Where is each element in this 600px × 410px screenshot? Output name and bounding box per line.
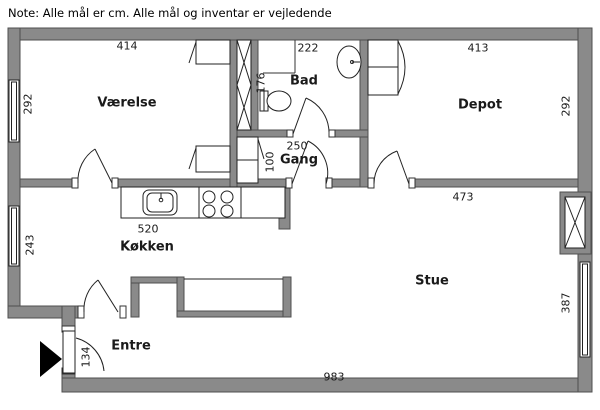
floor-plan: Note: Alle mål er cm. Alle mål og invent… [0,0,600,410]
bad-dim-lines [263,40,295,73]
dim-bad-width: 222 [298,42,319,55]
room-label-koekken: Køkken [120,240,174,255]
window-vaerelse [9,80,19,142]
dim-entre-door: 134 [80,347,93,368]
wall-mid-b [112,179,292,187]
closet-vaerelse-bottom [189,146,230,172]
door-depot [374,151,409,184]
wall-entre-post [283,277,291,317]
dim-bad-height: 176 [255,73,268,94]
room-label-gang: Gang [280,153,318,168]
room-label-bad: Bad [290,74,318,89]
dim-stue-width: 473 [453,191,474,204]
wall-mid-d [409,179,578,187]
windows [9,80,590,357]
wall-mid-a [20,179,78,187]
room-label-vaerelse: Værelse [97,96,156,111]
dim-depot-height: 292 [560,96,573,117]
shaft-vaerelse-bad [237,40,251,130]
note-text: Note: Alle mål er cm. Alle mål og invent… [8,6,332,20]
door-bad [293,98,329,134]
toilet [260,91,291,111]
dim-vaerelse-height: 292 [22,94,35,115]
door-vaerelse [78,149,112,183]
wall-outer-top [8,28,592,40]
closet-vaerelse-top [189,40,230,64]
shaft-stue [565,197,585,248]
wardrobe-depot [368,40,405,95]
dim-depot-width: 413 [468,42,489,55]
dim-total-width: 983 [324,371,345,384]
window-stue [580,262,590,357]
dim-stue-height: 387 [560,293,573,314]
bathroom-sink [337,46,361,78]
room-label-stue: Stue [415,274,449,289]
wall-vaerelse-right [230,40,237,187]
dim-vaerelse-width: 414 [117,40,138,53]
kitchen-sink [143,190,177,215]
dim-gang-width: 250 [287,140,308,153]
dim-koekken-height: 243 [24,235,37,256]
window-koekken [9,206,19,266]
wall-entre-zig-top [131,277,184,283]
dim-koekken-counter: 520 [138,223,159,236]
room-label-entre: Entre [111,339,151,354]
wall-bad-bottom-left [237,130,293,137]
entrance-arrow-icon [40,341,62,377]
wall-entre-zig-bottom [177,311,291,317]
closet-gang [237,137,264,183]
room-label-depot: Depot [458,98,502,113]
wall-outer-left [8,28,20,318]
door-entre-inner [84,280,118,312]
dim-gang-height: 100 [264,152,277,173]
